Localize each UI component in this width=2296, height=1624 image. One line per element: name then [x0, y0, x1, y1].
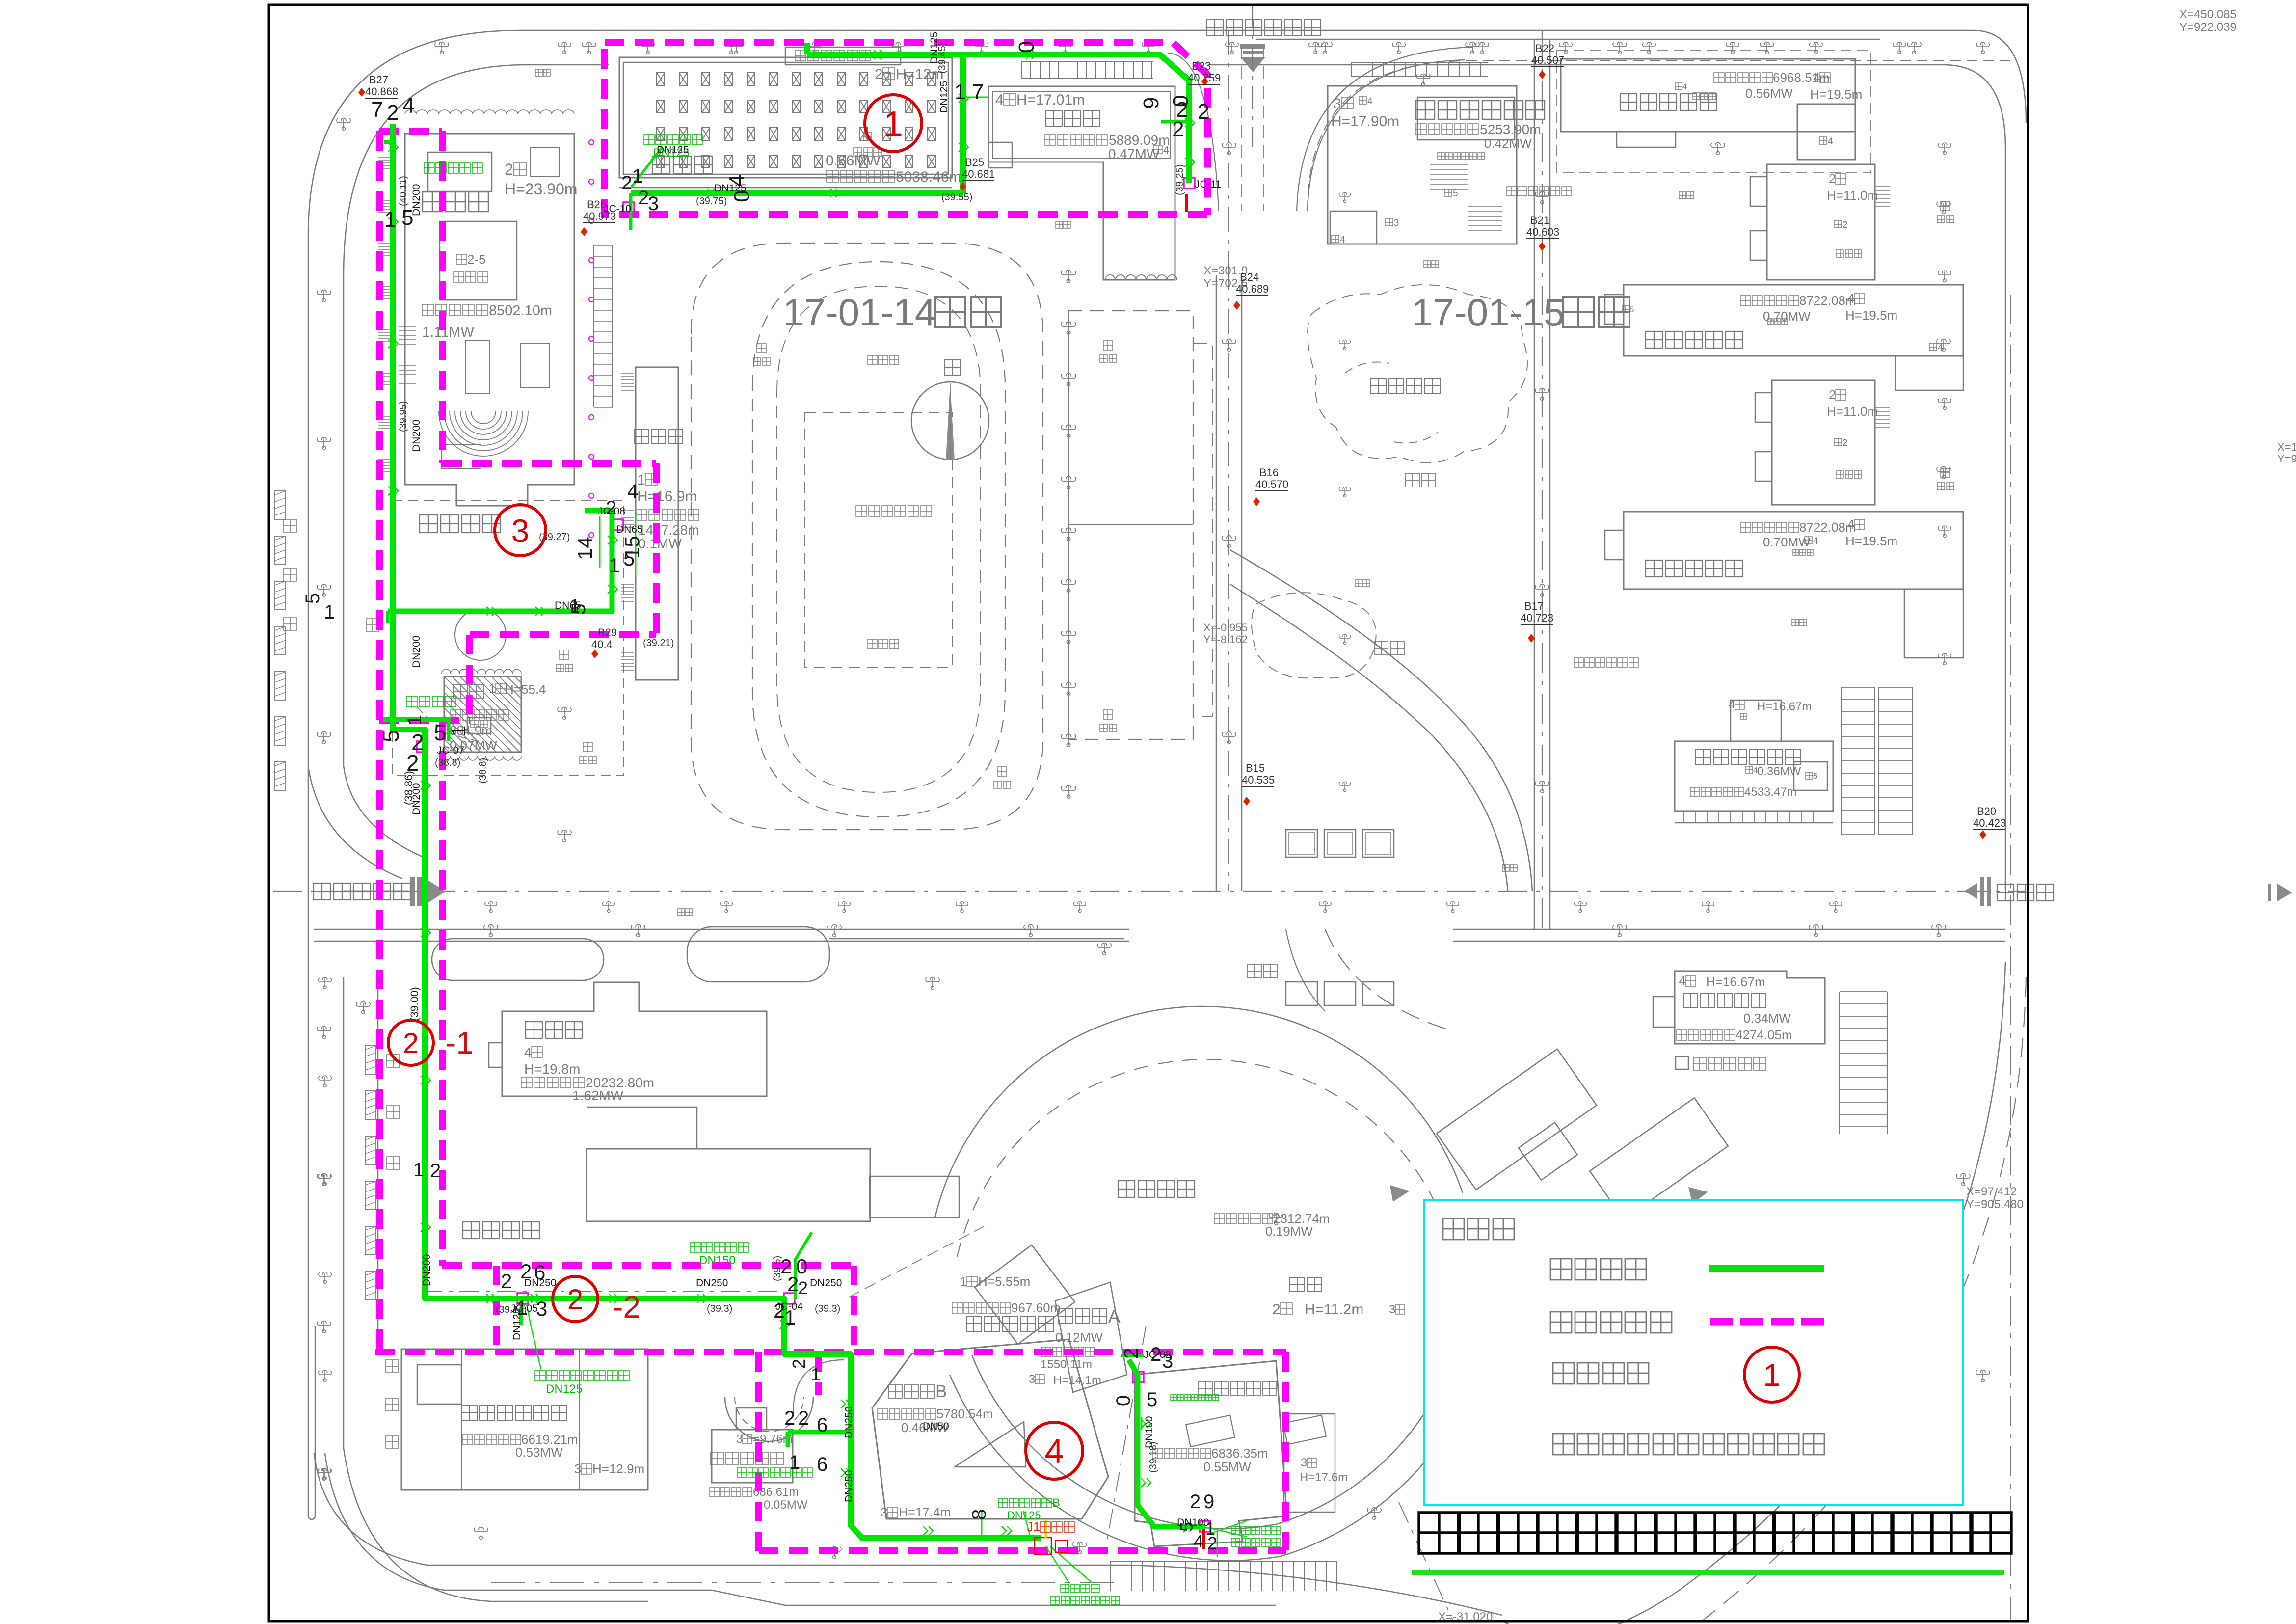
- svg-text:4: 4: [1679, 974, 1685, 988]
- svg-text:JC-02: JC-02: [1144, 1349, 1171, 1360]
- svg-text:4: 4: [1813, 70, 1820, 85]
- svg-text:DN125: DN125: [546, 1382, 583, 1396]
- svg-text:2: 2: [621, 172, 632, 194]
- svg-text:0.12MW: 0.12MW: [1055, 1330, 1103, 1345]
- svg-text:1: 1: [632, 165, 643, 187]
- svg-text:2: 2: [430, 1160, 441, 1182]
- svg-text:8: 8: [968, 1509, 990, 1520]
- svg-text:1: 1: [324, 601, 335, 623]
- svg-text:4: 4: [1729, 698, 1735, 711]
- svg-text:H=23.90m: H=23.90m: [505, 180, 578, 198]
- svg-text:DN250: DN250: [696, 1277, 728, 1289]
- svg-text:4: 4: [1340, 235, 1345, 245]
- svg-text:40.4: 40.4: [591, 638, 613, 650]
- svg-text:1550.11m: 1550.11m: [1041, 1358, 1092, 1371]
- svg-text:4: 4: [1828, 136, 1833, 147]
- svg-text:40.868: 40.868: [365, 85, 398, 98]
- svg-text:B: B: [935, 1382, 947, 1401]
- svg-text:40.423: 40.423: [1973, 817, 2006, 829]
- svg-text:1: 1: [789, 1452, 800, 1473]
- svg-text:DN100: DN100: [1177, 1517, 1209, 1528]
- svg-text:2: 2: [638, 187, 649, 209]
- svg-text:0.55MW: 0.55MW: [1203, 1460, 1251, 1474]
- svg-text:DN50: DN50: [923, 1421, 949, 1432]
- svg-text:(38.8): (38.8): [478, 758, 488, 784]
- svg-text:2: 2: [1207, 1533, 1217, 1553]
- svg-text:1: 1: [954, 80, 966, 104]
- svg-text:5: 5: [1453, 189, 1458, 199]
- svg-text:2: 2: [1272, 1301, 1281, 1318]
- svg-text:6: 6: [817, 1414, 828, 1436]
- svg-text:DN250: DN250: [810, 1277, 842, 1289]
- svg-text:0: 0: [1015, 41, 1039, 53]
- svg-text:5038.46m: 5038.46m: [896, 169, 961, 185]
- svg-text:H=17.4m: H=17.4m: [899, 1505, 951, 1519]
- svg-text:2: 2: [1121, 1348, 1142, 1359]
- svg-text:0.56MW: 0.56MW: [1745, 86, 1793, 101]
- svg-text:2: 2: [784, 1407, 795, 1429]
- svg-text:0.19MW: 0.19MW: [1265, 1224, 1313, 1239]
- svg-text:JC-08: JC-08: [598, 506, 625, 517]
- svg-text:-1: -1: [446, 1025, 474, 1060]
- svg-text:2: 2: [1198, 100, 1209, 124]
- svg-text:40.535: 40.535: [1242, 774, 1275, 786]
- svg-text:JC-07: JC-07: [437, 745, 464, 756]
- svg-text:1: 1: [384, 208, 396, 232]
- svg-text:9: 9: [1139, 97, 1163, 109]
- svg-text:Y=905.480: Y=905.480: [1966, 1198, 2024, 1211]
- svg-text:B20: B20: [1977, 805, 1996, 817]
- svg-text:4: 4: [1813, 536, 1818, 546]
- svg-text:4: 4: [1194, 1531, 1203, 1551]
- svg-text:3: 3: [511, 513, 530, 549]
- svg-text:0.36MW: 0.36MW: [1757, 765, 1801, 778]
- svg-text:40.759: 40.759: [1188, 72, 1221, 84]
- svg-text:5253.90m: 5253.90m: [1480, 122, 1541, 137]
- svg-text:DN200: DN200: [421, 1254, 432, 1286]
- svg-text:DN200: DN200: [411, 636, 422, 668]
- svg-text:1: 1: [609, 554, 620, 577]
- svg-text:B25: B25: [965, 156, 984, 168]
- svg-text:6: 6: [817, 1454, 828, 1475]
- svg-text:DN65: DN65: [555, 600, 581, 611]
- svg-text:B15: B15: [1246, 762, 1265, 774]
- svg-text:4: 4: [627, 481, 638, 502]
- svg-text:1: 1: [1763, 1357, 1781, 1393]
- svg-text:17-01-15: 17-01-15: [1412, 291, 1565, 334]
- svg-text:40.723: 40.723: [1521, 612, 1553, 624]
- svg-text:0.1MW: 0.1MW: [638, 536, 682, 551]
- svg-text:JC-10: JC-10: [604, 203, 631, 215]
- svg-text:3: 3: [1301, 1456, 1307, 1469]
- svg-text:5: 5: [1813, 771, 1817, 781]
- svg-text:4: 4: [1367, 96, 1373, 107]
- svg-text:B21: B21: [1530, 214, 1549, 226]
- svg-text:DN150: DN150: [699, 1254, 736, 1267]
- svg-text:(38.8): (38.8): [435, 758, 460, 768]
- svg-text:4: 4: [1682, 82, 1687, 91]
- svg-text:4: 4: [1045, 1432, 1064, 1470]
- svg-text:JC-11: JC-11: [1195, 179, 1221, 190]
- svg-text:7: 7: [371, 98, 383, 122]
- svg-text:H=19.8m: H=19.8m: [524, 1061, 580, 1077]
- svg-text:1: 1: [413, 1159, 424, 1181]
- svg-text:X=-0.955: X=-0.955: [1203, 622, 1248, 634]
- svg-text:B24: B24: [1240, 271, 1259, 283]
- svg-text:DN125: DN125: [938, 81, 950, 113]
- svg-text:2: 2: [787, 1272, 799, 1296]
- svg-text:(39.18): (39.18): [1148, 1442, 1159, 1473]
- svg-text:(39.55): (39.55): [941, 192, 972, 203]
- svg-text:1.62MW: 1.62MW: [572, 1088, 624, 1103]
- svg-text:1: 1: [404, 715, 426, 726]
- svg-text:2: 2: [567, 1284, 583, 1316]
- svg-text:(39.75): (39.75): [696, 196, 727, 207]
- svg-text:1: 1: [811, 1364, 821, 1384]
- svg-text:5: 5: [302, 593, 323, 604]
- svg-text:DN250: DN250: [524, 1277, 556, 1289]
- svg-text:(39.3): (39.3): [707, 1303, 732, 1314]
- svg-text:(39.00): (39.00): [408, 987, 421, 1021]
- svg-text:3: 3: [648, 193, 659, 215]
- svg-text:5780.54m: 5780.54m: [936, 1407, 993, 1421]
- svg-text:(40.11): (40.11): [398, 176, 409, 206]
- svg-text:2: 2: [387, 101, 399, 125]
- svg-text:1427.28m: 1427.28m: [638, 522, 699, 538]
- svg-text:JC-04: JC-04: [775, 1301, 803, 1312]
- svg-text:DN65: DN65: [616, 524, 643, 535]
- svg-text:B16: B16: [1259, 466, 1279, 479]
- svg-text:DN125: DN125: [714, 183, 746, 194]
- svg-text:0.42MW: 0.42MW: [1484, 136, 1532, 151]
- svg-text:2: 2: [403, 1028, 419, 1059]
- svg-text:(39.21): (39.21): [643, 638, 674, 649]
- svg-text:X=450.085: X=450.085: [2179, 8, 2237, 21]
- svg-text:4: 4: [1847, 517, 1854, 532]
- svg-text:2: 2: [1829, 387, 1836, 402]
- svg-text:2: 2: [798, 1278, 808, 1298]
- svg-text:H=12.9m: H=12.9m: [592, 1462, 644, 1476]
- svg-text:DN125: DN125: [657, 144, 689, 156]
- svg-text:H=14.1m: H=14.1m: [1053, 1374, 1101, 1387]
- svg-text:40.507: 40.507: [1531, 54, 1564, 66]
- svg-text:2: 2: [501, 1270, 512, 1293]
- svg-text:H=19.5m: H=19.5m: [1845, 534, 1897, 548]
- svg-text:X=17.9: X=17.9: [2277, 441, 2296, 453]
- svg-text:3: 3: [1394, 218, 1399, 228]
- svg-text:4: 4: [1847, 291, 1854, 306]
- svg-text:2: 2: [1172, 117, 1184, 141]
- svg-text:2: 2: [1829, 171, 1836, 186]
- svg-text:5: 5: [434, 720, 447, 745]
- svg-text:Y=922.039: Y=922.039: [2179, 21, 2237, 34]
- svg-text:17-01-14: 17-01-14: [783, 291, 936, 334]
- svg-text:5: 5: [623, 547, 635, 570]
- svg-text:8502.10m: 8502.10m: [489, 303, 552, 319]
- svg-text:2: 2: [789, 1359, 809, 1369]
- svg-text:40.570: 40.570: [1255, 478, 1288, 490]
- svg-text:(39.95): (39.95): [398, 401, 409, 432]
- svg-text:H=17.90m: H=17.90m: [1331, 113, 1399, 130]
- svg-text:6836.35m: 6836.35m: [1211, 1446, 1268, 1461]
- svg-text:4: 4: [402, 94, 414, 118]
- svg-text:40.681: 40.681: [962, 168, 995, 180]
- svg-text:0: 0: [1113, 1395, 1134, 1406]
- svg-text:DN250: DN250: [843, 1470, 854, 1502]
- svg-text:0: 0: [1169, 95, 1193, 107]
- svg-text:DN200: DN200: [411, 184, 422, 216]
- svg-text:2: 2: [798, 1407, 809, 1429]
- svg-text:0.70MW: 0.70MW: [1763, 535, 1811, 549]
- svg-text:0.47MW: 0.47MW: [1108, 146, 1160, 162]
- svg-text:2: 2: [875, 66, 883, 82]
- svg-text:967.60m: 967.60m: [1011, 1300, 1061, 1315]
- svg-text:0.34MW: 0.34MW: [1743, 1011, 1791, 1026]
- svg-text:H=5.55m: H=5.55m: [978, 1274, 1030, 1289]
- svg-text:B23: B23: [1192, 60, 1211, 72]
- svg-text:Y=-8.162: Y=-8.162: [1203, 633, 1248, 646]
- svg-text:4: 4: [995, 92, 1004, 108]
- svg-text:-2: -2: [613, 1289, 641, 1325]
- svg-text:14: 14: [573, 537, 596, 560]
- svg-text:7: 7: [972, 80, 984, 104]
- svg-text:9: 9: [1203, 1491, 1214, 1513]
- svg-text:40.689: 40.689: [1236, 283, 1269, 295]
- svg-text:4274.05m: 4274.05m: [1735, 1028, 1792, 1042]
- svg-text:H=11.2m: H=11.2m: [1305, 1301, 1363, 1318]
- svg-text:(39.5): (39.5): [772, 1256, 783, 1281]
- svg-text:5: 5: [1147, 1389, 1157, 1410]
- svg-text:40.603: 40.603: [1526, 226, 1559, 238]
- svg-text:H=55.4: H=55.4: [505, 682, 546, 697]
- svg-text:3: 3: [1333, 96, 1341, 112]
- svg-text:3: 3: [1389, 1303, 1395, 1316]
- svg-text:H=19.5m: H=19.5m: [1810, 87, 1862, 102]
- svg-text:B27: B27: [369, 74, 388, 86]
- svg-text:0.53MW: 0.53MW: [515, 1445, 563, 1460]
- svg-text:1: 1: [489, 681, 496, 696]
- svg-text:B22: B22: [1535, 42, 1554, 54]
- svg-text:2-5: 2-5: [467, 252, 486, 267]
- svg-text:3: 3: [881, 1505, 887, 1519]
- svg-text:1: 1: [448, 726, 470, 736]
- svg-text:H=11.0m: H=11.0m: [1827, 188, 1878, 203]
- svg-text:1: 1: [960, 1274, 967, 1289]
- svg-text:B17: B17: [1524, 600, 1544, 612]
- svg-text:Y=9.0: Y=9.0: [2277, 453, 2296, 465]
- svg-text:5: 5: [378, 730, 403, 742]
- svg-text:H=16.67m: H=16.67m: [1706, 974, 1765, 989]
- svg-text:H=12m: H=12m: [896, 66, 944, 82]
- svg-text:H=17.01m: H=17.01m: [1016, 92, 1085, 108]
- svg-text:1: 1: [883, 105, 903, 144]
- svg-text:B: B: [1052, 1496, 1060, 1510]
- svg-text:3: 3: [1029, 1373, 1035, 1386]
- svg-text:(39.25): (39.25): [1175, 164, 1185, 195]
- svg-text:0.05MW: 0.05MW: [764, 1498, 808, 1512]
- svg-text:2: 2: [1842, 220, 1848, 230]
- svg-text:(39.3): (39.3): [815, 1303, 840, 1314]
- svg-text:5: 5: [1629, 305, 1634, 314]
- svg-text:H=19.5m: H=19.5m: [1845, 308, 1897, 323]
- svg-text:4: 4: [1938, 343, 1943, 353]
- svg-text:2: 2: [505, 161, 513, 178]
- svg-text:(39.14): (39.14): [496, 1304, 527, 1315]
- svg-text:H=11.0m: H=11.0m: [1827, 404, 1878, 419]
- svg-text:DN200: DN200: [411, 783, 422, 815]
- svg-text:1.11MW: 1.11MW: [422, 325, 474, 340]
- svg-text:A: A: [1108, 1306, 1121, 1326]
- svg-text:2: 2: [1190, 1491, 1201, 1513]
- svg-text:J1: J1: [1027, 1519, 1040, 1534]
- svg-text:4: 4: [524, 1045, 532, 1060]
- svg-text:H=16.9m: H=16.9m: [637, 488, 697, 505]
- svg-text:DN200: DN200: [411, 420, 422, 452]
- svg-text:1: 1: [637, 472, 645, 488]
- svg-text:(39.45): (39.45): [937, 43, 948, 74]
- svg-text:3: 3: [574, 1462, 581, 1476]
- svg-text:X=97.412: X=97.412: [1966, 1185, 2017, 1198]
- svg-text:4: 4: [1163, 144, 1169, 156]
- svg-text:DN250: DN250: [843, 1407, 854, 1438]
- svg-text:H=17.6m: H=17.6m: [1300, 1471, 1348, 1484]
- svg-text:H=16.67m: H=16.67m: [1757, 700, 1812, 713]
- svg-text:4533.47m: 4533.47m: [1744, 785, 1797, 799]
- svg-text:B29: B29: [598, 626, 617, 639]
- svg-text:3: 3: [736, 1433, 743, 1446]
- svg-text:2: 2: [1842, 438, 1848, 448]
